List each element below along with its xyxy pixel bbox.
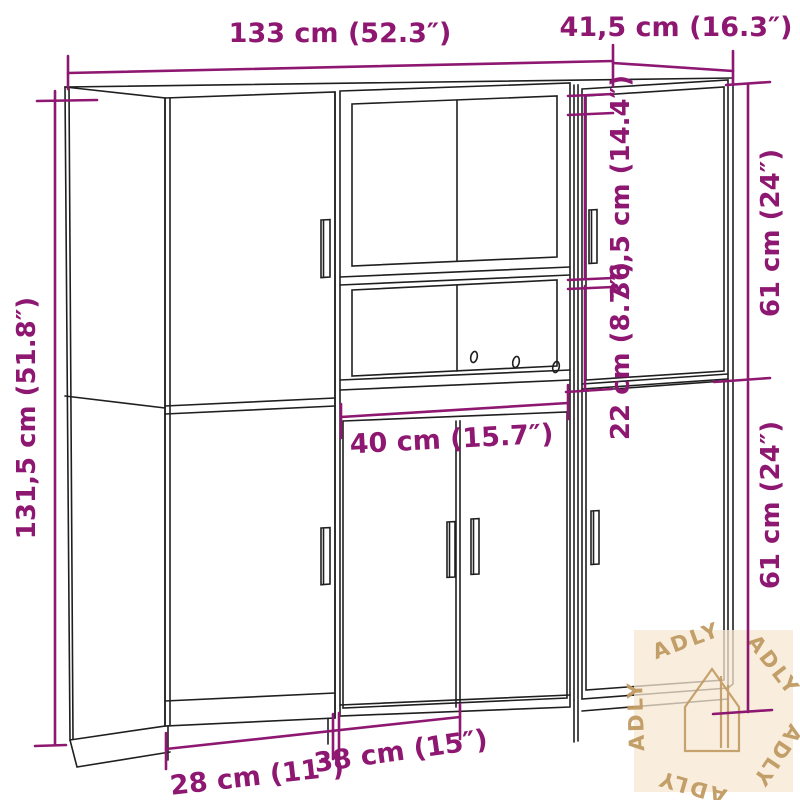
watermark-badge: ADLY ADLY ADLY ADLY ADLY (623, 617, 800, 800)
label-depth: 41,5 cm (16.3″) (560, 12, 793, 43)
dimension-diagram: ADLY ADLY ADLY ADLY ADLY (0, 0, 800, 800)
door-handle (589, 210, 597, 264)
open-shelf-section (340, 96, 570, 390)
door-handle (471, 519, 479, 575)
cabinet-dimension-drawing: ADLY ADLY ADLY ADLY ADLY (0, 0, 800, 800)
label-total-height: 131,5 cm (51.8″) (12, 297, 42, 539)
door-handle (321, 528, 330, 585)
label-right-lower-height: 61 cm (24″) (756, 421, 786, 589)
label-right-upper-height: 61 cm (24″) (756, 149, 786, 317)
door-handle (591, 511, 599, 565)
label-middle-width: 40 cm (15.7″) (349, 419, 554, 461)
door-handle (321, 220, 330, 278)
left-cabinet (65, 87, 335, 767)
door-handle (447, 522, 455, 578)
label-lower-opening-height: 22 cm (8.7″) (606, 262, 636, 440)
dimension-line-total-width (68, 45, 613, 89)
label-total-width: 133 cm (52.3″) (229, 18, 452, 49)
watermark-text: ADLY (623, 680, 649, 752)
